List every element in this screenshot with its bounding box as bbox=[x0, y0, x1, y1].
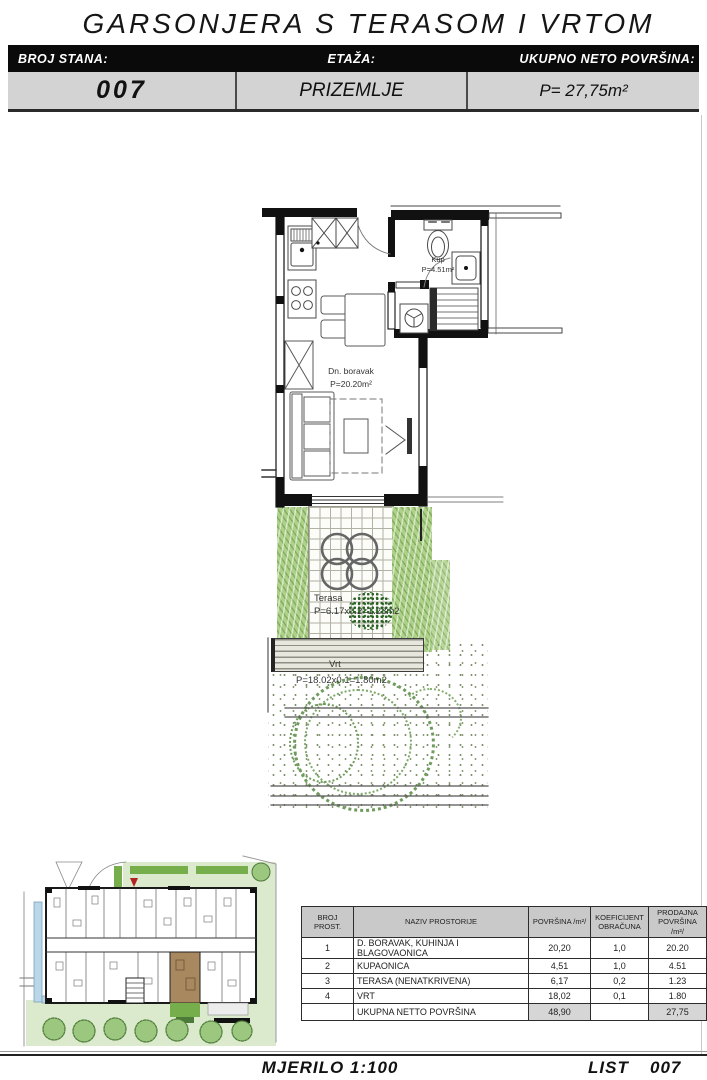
row-name: VRT bbox=[354, 989, 529, 1004]
table-row: 3 TERASA (NENATKRIVENA) 6,17 0,2 1.23 bbox=[302, 974, 707, 989]
living-room-area: P=20.20m² bbox=[330, 379, 372, 389]
highlighted-unit-garden bbox=[170, 1003, 200, 1017]
row-coef: 0,1 bbox=[591, 989, 649, 1004]
row-sale: 1.23 bbox=[649, 974, 707, 989]
row-coef: 0,2 bbox=[591, 974, 649, 989]
wall-top-left bbox=[262, 208, 357, 217]
footer-divider-bold bbox=[0, 1054, 707, 1056]
header-label-bar: BROJ STANA: ETAŽA: UKUPNO NETO POVRŠINA: bbox=[8, 45, 699, 72]
plan-sheet: GARSONJERA S TERASOM I VRTOM BROJ STANA:… bbox=[0, 0, 707, 1080]
total-empty bbox=[302, 1004, 354, 1021]
apartment-number: 007 bbox=[8, 72, 235, 109]
row-num: 4 bbox=[302, 989, 354, 1004]
coffee-table-symbol bbox=[344, 419, 368, 453]
area-table: BROJ PROST. NAZIV PROSTORIJE POVRŠINA /m… bbox=[301, 906, 707, 1021]
site-plan bbox=[18, 850, 283, 1050]
wall-divider bbox=[388, 217, 395, 257]
col-header: NAZIV PROSTORIJE bbox=[354, 907, 529, 938]
table-header-row: BROJ PROST. NAZIV PROSTORIJE POVRŠINA /m… bbox=[302, 907, 707, 938]
chair-symbol bbox=[321, 320, 347, 338]
sheet-number: 007 bbox=[650, 1058, 681, 1078]
col-header: POVRŠINA /m²/ bbox=[529, 907, 591, 938]
garden-name: Vrt bbox=[329, 659, 341, 670]
table-total-row: UKUPNA NETTO POVRŠINA 48,90 27,75 bbox=[302, 1004, 707, 1021]
total-area: 48,90 bbox=[529, 1004, 591, 1021]
window-arrow-icon bbox=[386, 426, 405, 454]
garden-area: P=18.02x0.1=1.80m2 bbox=[296, 675, 387, 686]
header-label-broj-stana: BROJ STANA: bbox=[8, 52, 235, 66]
footer: MJERILO 1:100 LIST 007 bbox=[0, 1058, 707, 1080]
row-num: 3 bbox=[302, 974, 354, 989]
garden-lines bbox=[268, 638, 488, 805]
stove-symbol bbox=[288, 280, 316, 318]
col-header: KOEFICIJENT OBRAČUNA bbox=[591, 907, 649, 938]
floor-value: PRIZEMLJE bbox=[235, 72, 468, 109]
entry-door-arc bbox=[356, 218, 390, 254]
header-label-povrsina: UKUPNO NETO POVRŠINA: bbox=[468, 52, 699, 66]
living-room-name: Dn. boravak bbox=[328, 366, 375, 376]
table-row: 4 VRT 18,02 0,1 1.80 bbox=[302, 989, 707, 1004]
wall-bottom-right bbox=[384, 494, 427, 506]
col-header: BROJ PROST. bbox=[302, 907, 354, 938]
net-area-value: P= 27,75m² bbox=[468, 72, 699, 109]
wall-neighbor-bottom bbox=[488, 328, 562, 333]
scale-label: MJERILO 1:100 bbox=[210, 1058, 450, 1078]
bathroom-area: P=4.51m² bbox=[422, 265, 455, 274]
bath-door-leaf bbox=[396, 282, 422, 288]
highlighted-unit bbox=[170, 952, 200, 1003]
row-name: TERASA (NENATKRIVENA) bbox=[354, 974, 529, 989]
page-title: GARSONJERA S TERASOM I VRTOM bbox=[8, 8, 699, 40]
floor-plan: Dn. boravak P=20.20m² Kup P=4.51m² Teras… bbox=[0, 115, 707, 860]
row-sale: 4.51 bbox=[649, 959, 707, 974]
terrace-name: Terasa bbox=[314, 593, 343, 604]
hedge bbox=[130, 866, 188, 874]
row-area: 4,51 bbox=[529, 959, 591, 974]
tree-icon bbox=[252, 863, 270, 881]
row-coef: 1,0 bbox=[591, 938, 649, 959]
terrace-flower-ornament bbox=[322, 534, 377, 589]
row-area: 18,02 bbox=[529, 989, 591, 1004]
window-leaf bbox=[407, 418, 412, 454]
row-coef: 1,0 bbox=[591, 959, 649, 974]
dining-table-symbol bbox=[345, 294, 385, 346]
bathroom-name: Kup bbox=[431, 255, 444, 264]
wall-top-right bbox=[391, 210, 489, 220]
row-sale: 20.20 bbox=[649, 938, 707, 959]
row-num: 2 bbox=[302, 959, 354, 974]
terrace-door-sill bbox=[312, 497, 384, 504]
row-area: 20,20 bbox=[529, 938, 591, 959]
header-label-etaza: ETAŽA: bbox=[235, 52, 468, 66]
row-sale: 1.80 bbox=[649, 989, 707, 1004]
total-empty bbox=[591, 1004, 649, 1021]
hedge bbox=[196, 866, 248, 874]
sheet-label: LIST bbox=[588, 1058, 629, 1078]
row-area: 6,17 bbox=[529, 974, 591, 989]
terrace-bush bbox=[348, 592, 394, 630]
table-row: 1 D. BORAVAK, KUHINJA I BLAGOVAONICA 20,… bbox=[302, 938, 707, 959]
chair-symbol bbox=[321, 296, 347, 314]
wall-bath-right bbox=[481, 220, 488, 328]
header-value-row: 007 PRIZEMLJE P= 27,75m² bbox=[8, 72, 699, 112]
row-name: KUPAONICA bbox=[354, 959, 529, 974]
wall-left bbox=[276, 217, 284, 507]
wall-bottom-left bbox=[276, 494, 312, 506]
total-label: UKUPNA NETTO POVRŠINA bbox=[354, 1004, 529, 1021]
pool bbox=[34, 902, 42, 1002]
footer-divider bbox=[0, 1051, 707, 1052]
total-sale: 27,75 bbox=[649, 1004, 707, 1021]
wall-neighbor-top bbox=[489, 213, 561, 218]
table-row: 2 KUPAONICA 4,51 1,0 4.51 bbox=[302, 959, 707, 974]
row-num: 1 bbox=[302, 938, 354, 959]
col-header: PRODAJNA POVRŠINA /m²/ bbox=[649, 907, 707, 938]
row-name: D. BORAVAK, KUHINJA I BLAGOVAONICA bbox=[354, 938, 529, 959]
